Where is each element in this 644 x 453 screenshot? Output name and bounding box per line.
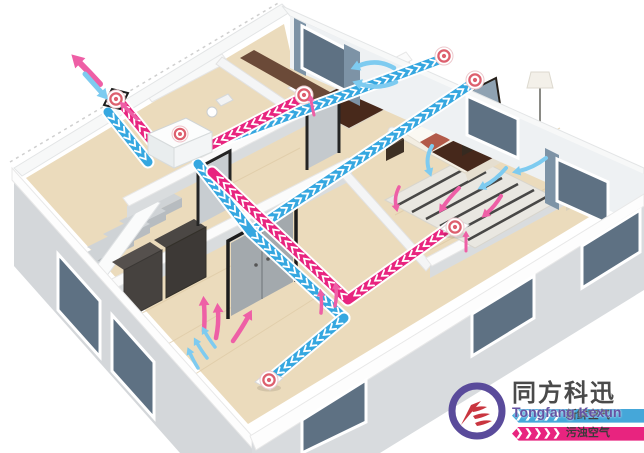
door-handle	[266, 257, 270, 261]
ventilation-diagram: 同方科迅 Tongfang Kexun ❯❯❯❯❯ 新鲜空气 ❯❯❯❯❯ 污浊空…	[0, 0, 644, 453]
bedroom1-supply-vent	[435, 47, 453, 65]
brand-name-en: Tongfang Kexun	[512, 404, 621, 420]
polluted-air-legend: ❯❯❯❯❯ 污浊空气	[512, 427, 644, 441]
exhaust-out-arrow	[71, 54, 100, 84]
logo-mark-icon	[447, 381, 507, 441]
polluted-air-label: 污浊空气	[566, 428, 610, 439]
brand-logo: 同方科迅 Tongfang Kexun ❯❯❯❯❯ 新鲜空气 ❯❯❯❯❯ 污浊空…	[447, 372, 644, 450]
brand-name-cn: 同方科迅	[512, 381, 644, 406]
door-handle	[254, 263, 258, 267]
toilet	[207, 107, 217, 117]
bedroom2-supply-vent	[466, 71, 484, 89]
polluted-chevrons-icon: ❯❯❯❯❯	[515, 429, 562, 439]
